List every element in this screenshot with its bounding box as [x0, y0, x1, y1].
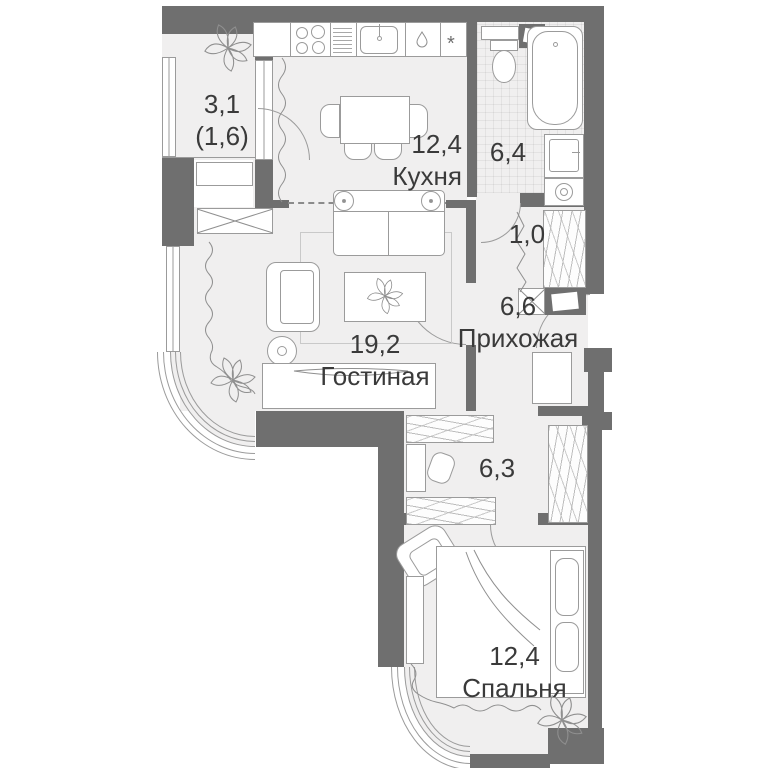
corridor-label: 6,3 [462, 452, 532, 484]
counter-divider [405, 22, 406, 57]
living-area: 19,2 [280, 328, 470, 360]
floor-plan: * [0, 0, 768, 768]
balcony-area-note: (1,6) [168, 120, 276, 152]
ac-ledge [196, 162, 253, 186]
bedroom-label: 12,4 Спальня [422, 640, 607, 704]
toilet-bowl [492, 50, 516, 83]
wall-segment [538, 406, 588, 416]
counter-divider [356, 22, 357, 57]
counter-divider [330, 22, 331, 57]
wall-segment [470, 754, 550, 768]
corridor-wardrobe-top [406, 415, 494, 443]
sink-tap [377, 36, 382, 41]
stove-burner [296, 27, 308, 39]
hallway-area: 6,6 [438, 290, 598, 322]
wall-segment [466, 200, 476, 283]
bathroom-area: 6,4 [478, 136, 538, 168]
coffee-table [344, 272, 426, 322]
wall-segment [467, 22, 477, 197]
bathroom-shelf [481, 26, 519, 40]
wardrobe-crossed [197, 208, 273, 234]
armchair-cushion [280, 270, 314, 324]
bedroom-name: Спальня [422, 672, 607, 704]
sink-drainer [333, 26, 352, 53]
bathroom-label: 6,4 [478, 136, 538, 168]
sofa-armrest-dot [342, 199, 346, 203]
living-name: Гостиная [280, 360, 470, 392]
wall-segment [584, 22, 604, 294]
bed-pillow [555, 558, 579, 616]
counter-divider [440, 22, 441, 57]
facade-arc [157, 352, 255, 460]
bathtub-drain [553, 42, 558, 47]
wall-segment [588, 430, 602, 652]
sink-tap-stem [379, 24, 380, 36]
balcony-parapet [162, 157, 255, 158]
closet-area: 1,0 [497, 218, 557, 250]
stove-burner [312, 41, 325, 54]
corridor-wardrobe-right [548, 425, 588, 523]
balcony-area: 3,1 [168, 88, 276, 120]
counter-divider [290, 22, 291, 57]
wall-segment [162, 6, 255, 34]
sofa-back-line [334, 211, 444, 212]
kitchen-label: 12,4 Кухня [330, 128, 462, 192]
corridor-wardrobe-bottom [406, 497, 496, 525]
bathroom-sink [549, 139, 579, 172]
stove-burner [311, 25, 325, 39]
washing-machine-door-inner [560, 188, 568, 196]
wall-segment [255, 158, 273, 208]
corridor-desk [406, 444, 426, 492]
wall-segment [255, 6, 604, 22]
wall-segment [256, 411, 404, 447]
corridor-area: 6,3 [462, 452, 532, 484]
living-window [166, 246, 180, 352]
closet-label: 1,0 [497, 218, 557, 250]
stove-burner [296, 42, 308, 54]
hallway-cabinet [532, 352, 572, 404]
defrost-symbol: * [447, 28, 455, 60]
bedroom-area: 12,4 [422, 640, 607, 672]
sofa-armrest-dot [429, 199, 433, 203]
sofa-seat-split [388, 212, 389, 255]
kitchen-name: Кухня [330, 160, 462, 192]
wall-segment [548, 728, 604, 764]
balcony-label: 3,1 (1,6) [168, 88, 276, 152]
wall-segment [273, 200, 289, 208]
sink-tap-mark [572, 152, 580, 153]
kitchen-area: 12,4 [330, 128, 462, 160]
wall-segment [162, 158, 194, 246]
living-label: 19,2 Гостиная [280, 328, 470, 392]
